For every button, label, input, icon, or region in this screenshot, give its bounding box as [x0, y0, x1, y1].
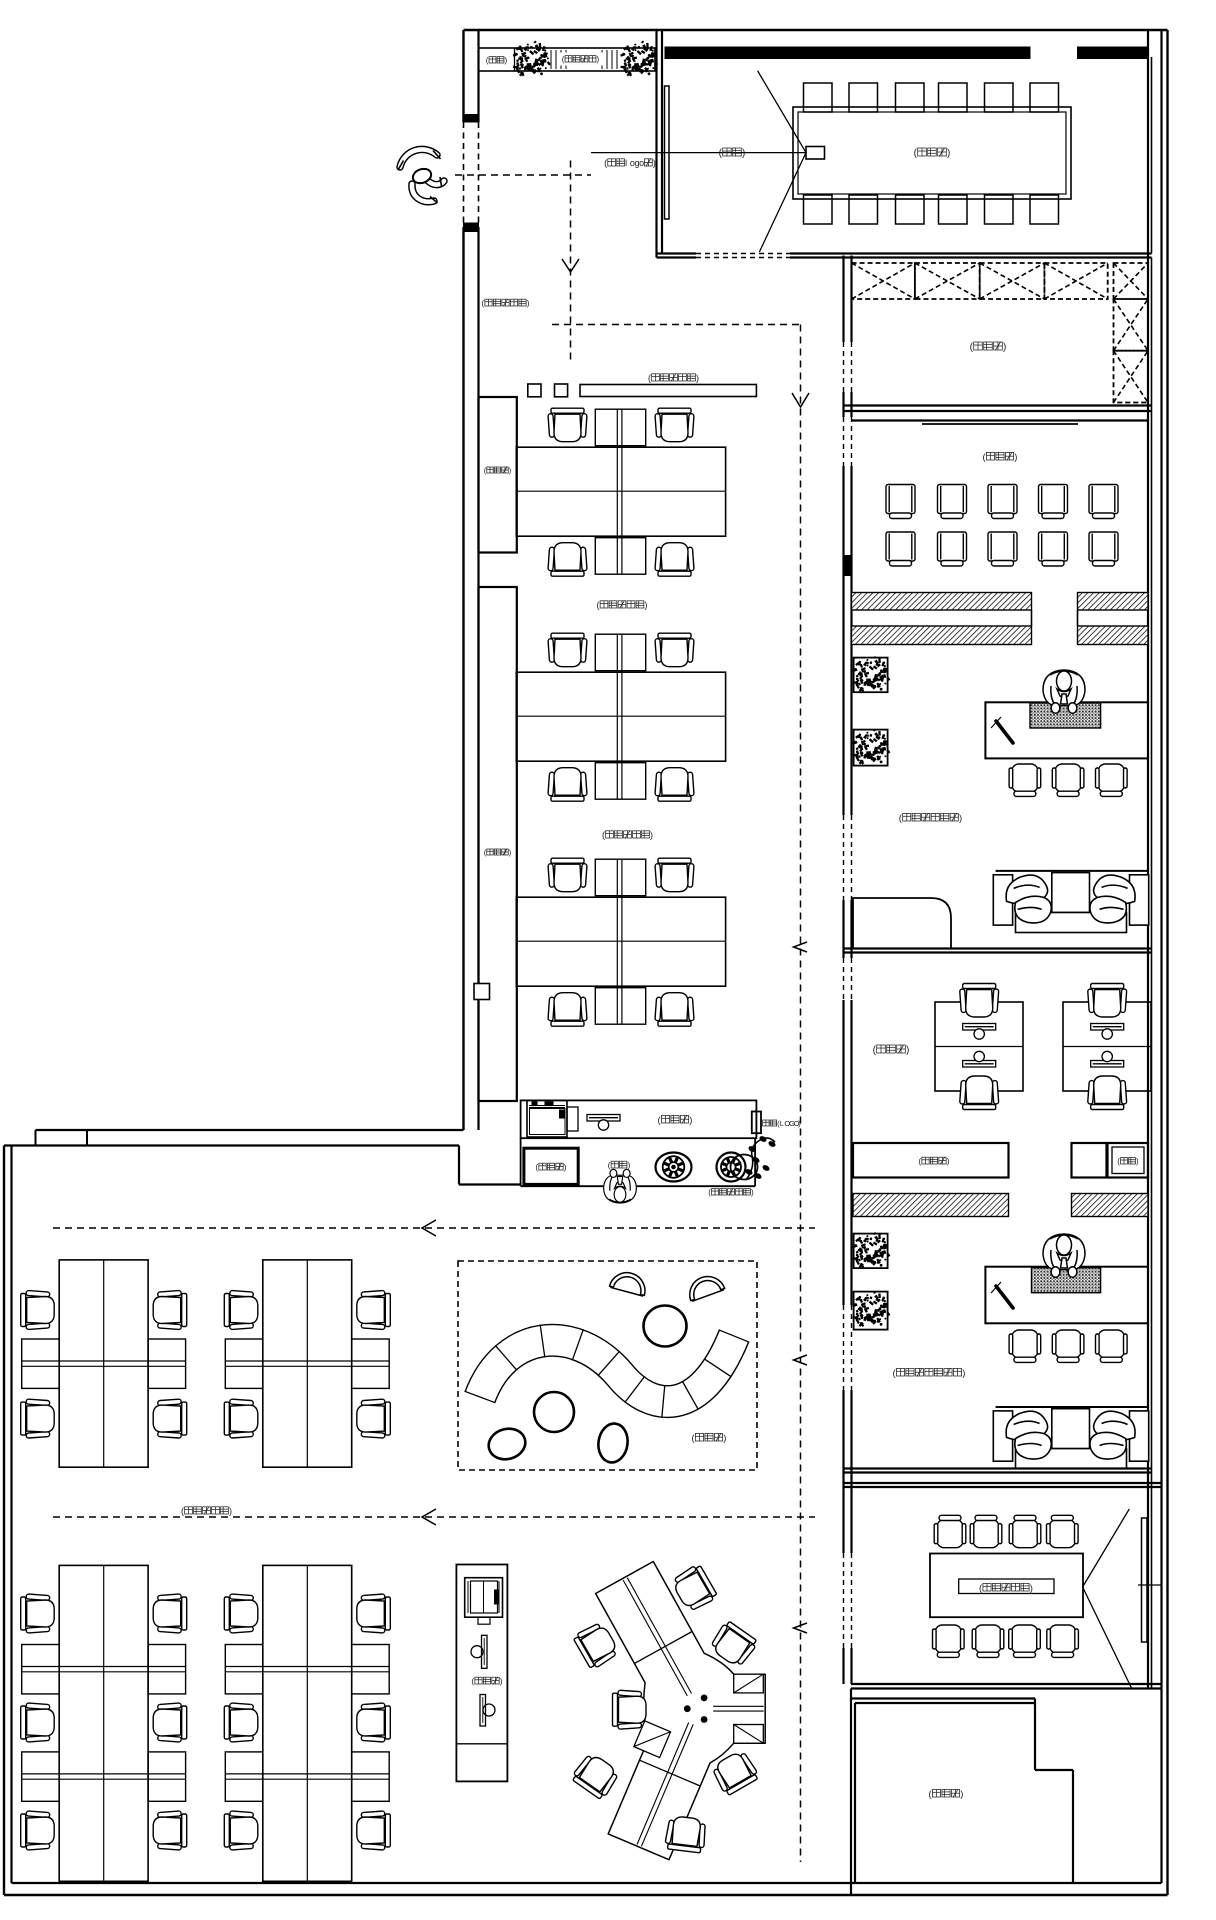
svg-text:): ) — [505, 56, 508, 65]
svg-text:): ) — [1003, 342, 1006, 353]
svg-text:(: ( — [535, 1162, 538, 1172]
svg-text:): ) — [229, 1506, 232, 1516]
svg-text:): ) — [960, 1789, 963, 1800]
svg-text:(: ( — [602, 830, 605, 840]
svg-text:(: ( — [708, 1188, 711, 1197]
svg-text:l: l — [625, 158, 627, 168]
svg-text:(: ( — [471, 1676, 474, 1686]
svg-text:): ) — [751, 1188, 754, 1197]
svg-text:(: ( — [1117, 1157, 1120, 1166]
svg-text:): ) — [564, 1162, 567, 1172]
svg-text:(: ( — [181, 1506, 184, 1516]
svg-text:): ) — [645, 600, 648, 610]
svg-text:): ) — [1014, 452, 1017, 463]
svg-text:(: ( — [918, 1156, 921, 1166]
svg-text:o: o — [639, 158, 644, 168]
svg-text:): ) — [527, 298, 530, 308]
svg-text:): ) — [1030, 1583, 1033, 1594]
svg-text:): ) — [689, 1115, 692, 1126]
svg-text:): ) — [959, 813, 962, 824]
svg-text:L: L — [780, 1119, 784, 1128]
svg-text:(: ( — [562, 55, 565, 64]
svg-text:): ) — [653, 158, 656, 168]
svg-text:(: ( — [486, 56, 489, 65]
svg-text:): ) — [742, 148, 745, 159]
svg-text:): ) — [650, 830, 653, 840]
svg-text:(: ( — [481, 298, 484, 308]
svg-text:(: ( — [608, 1160, 611, 1170]
svg-text:): ) — [962, 1368, 965, 1379]
svg-text:): ) — [597, 55, 600, 64]
svg-text:): ) — [947, 148, 950, 159]
svg-text:): ) — [500, 1676, 503, 1686]
svg-text:): ) — [723, 1433, 726, 1444]
svg-text:): ) — [947, 1156, 950, 1166]
svg-text:(: ( — [648, 373, 651, 383]
svg-text:): ) — [906, 1045, 909, 1056]
svg-text:): ) — [696, 373, 699, 383]
svg-text:(: ( — [596, 600, 599, 610]
svg-text:): ) — [1136, 1157, 1139, 1166]
svg-text:(: ( — [604, 158, 607, 168]
svg-text:): ) — [628, 1160, 631, 1170]
